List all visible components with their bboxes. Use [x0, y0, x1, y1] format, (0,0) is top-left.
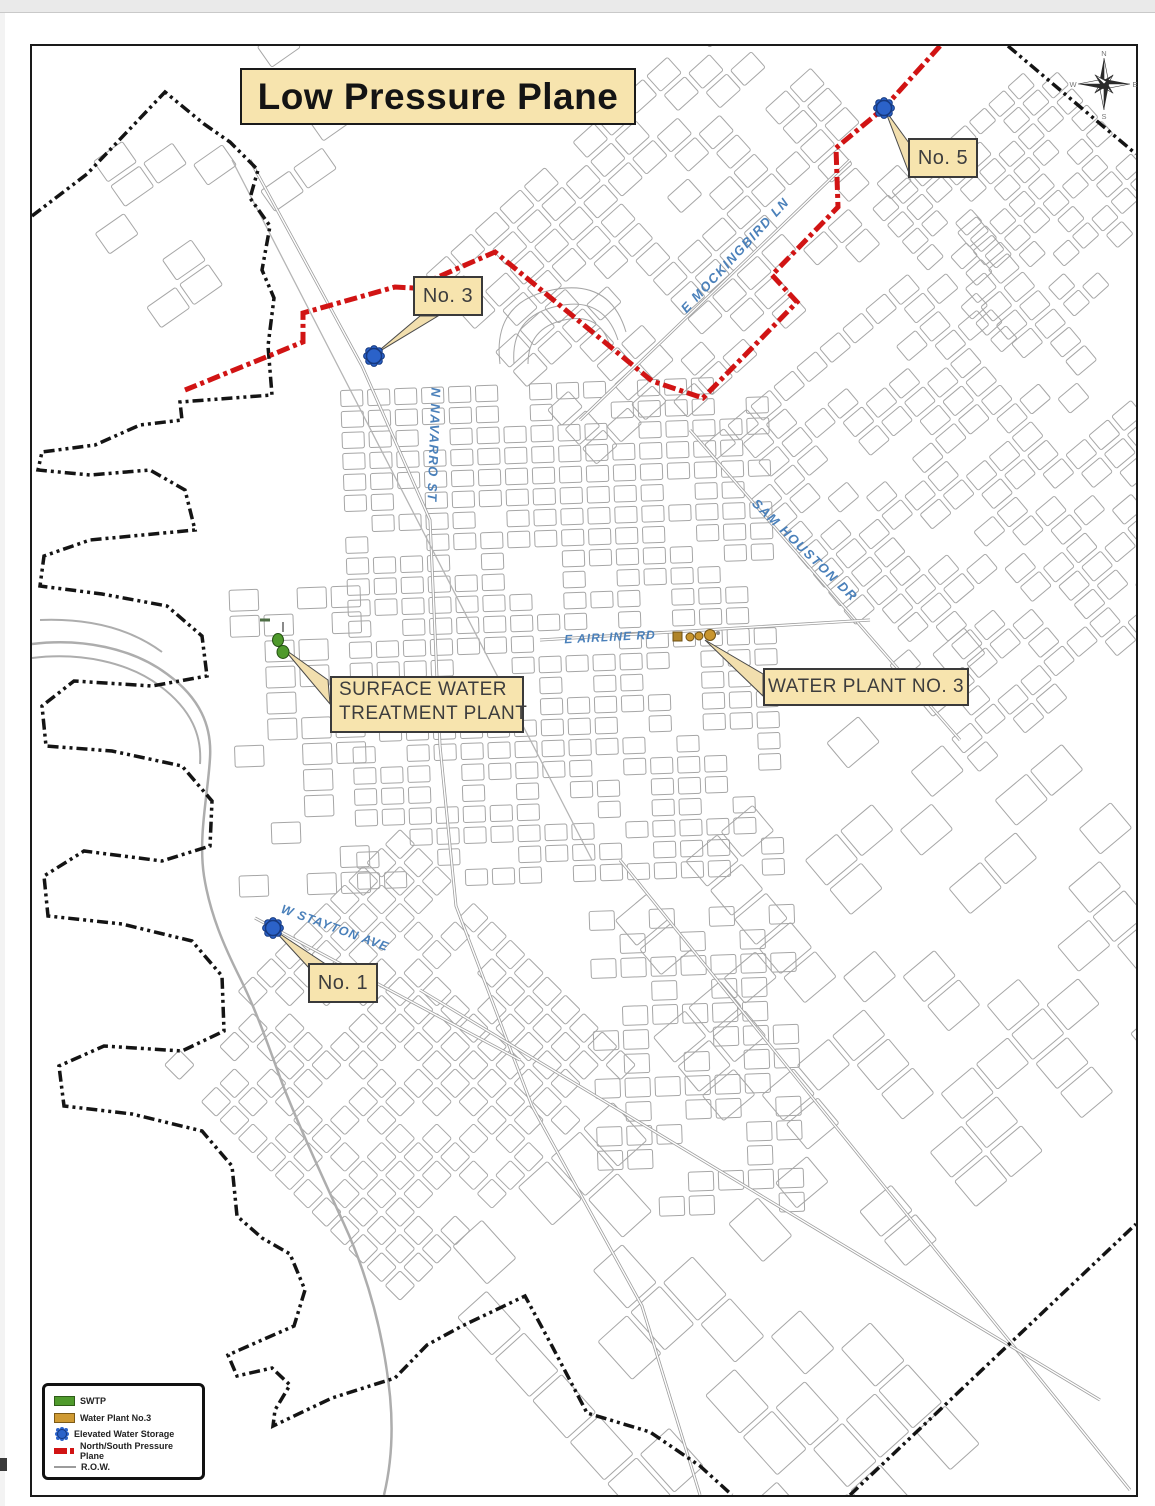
legend-label: Elevated Water Storage: [74, 1429, 174, 1439]
map-title-text: Low Pressure Plane: [258, 76, 619, 118]
elevated-storage-marker-no5: [874, 98, 895, 119]
callout-surface-water-treatment-plant: SURFACE WATER TREATMENT PLANT: [330, 676, 524, 733]
callout-no1-text: No. 1: [318, 972, 368, 995]
compass-rose: N E S W: [1067, 47, 1141, 121]
boundary-line: [32, 46, 1136, 1495]
compass-west-label: W: [1069, 80, 1077, 89]
callout-no5-text: No. 5: [918, 147, 968, 170]
page-left-margin: [0, 13, 5, 1506]
callout-no3: No. 3: [413, 276, 483, 316]
map-title: Low Pressure Plane: [240, 68, 636, 125]
legend-item-row: R.O.W.: [54, 1459, 198, 1476]
swtp-swatch-icon: [54, 1396, 75, 1406]
elevated-storage-icon: [54, 1427, 69, 1442]
elevated-storage-marker-no3: [364, 346, 385, 367]
compass-north-label: N: [1101, 49, 1106, 58]
callout-no3-text: No. 3: [423, 285, 473, 308]
legend-label: Water Plant No.3: [80, 1413, 151, 1423]
callout-no1: No. 1: [308, 963, 378, 1003]
legend-item-pressure-plane: North/South Pressure Plane: [54, 1443, 198, 1460]
map-frame: Low Pressure Plane N E S W No. 5 No. 3 N…: [30, 44, 1138, 1497]
water-plant-swatch-icon: [54, 1413, 75, 1423]
compass-south-label: S: [1101, 112, 1106, 121]
window-top-strip: [0, 0, 1155, 13]
compass-star-icon: [1078, 58, 1130, 110]
pressure-plane-swatch-icon: [54, 1448, 75, 1454]
callout-no5: No. 5: [908, 138, 978, 178]
legend-label: SWTP: [80, 1396, 106, 1406]
compass-east-label: E: [1132, 80, 1137, 89]
legend: SWTP Water Plant No.3 Elevated Water Sto…: [42, 1383, 205, 1480]
map-canvas: [32, 46, 1136, 1495]
legend-label: North/South Pressure Plane: [80, 1441, 198, 1461]
elevated-storage-marker-no1: [263, 918, 284, 939]
callout-water-plant-no3: WATER PLANT NO. 3: [763, 668, 969, 706]
callout-wp3-text: WATER PLANT NO. 3: [768, 676, 964, 698]
screenshot-root: { "title": "Low Pressure Plane", "compas…: [0, 0, 1155, 1506]
callout-swtp-line2: TREATMENT PLANT: [339, 702, 527, 726]
street-network: [61, 46, 1136, 1495]
page-edge-artifact: [0, 1458, 7, 1471]
legend-item-water-plant: Water Plant No.3: [54, 1410, 198, 1427]
row-line-icon: [54, 1466, 76, 1468]
river: [32, 620, 392, 1495]
legend-item-swtp: SWTP: [54, 1393, 198, 1410]
callout-swtp-line1: SURFACE WATER: [339, 678, 507, 702]
legend-label: R.O.W.: [81, 1462, 110, 1472]
